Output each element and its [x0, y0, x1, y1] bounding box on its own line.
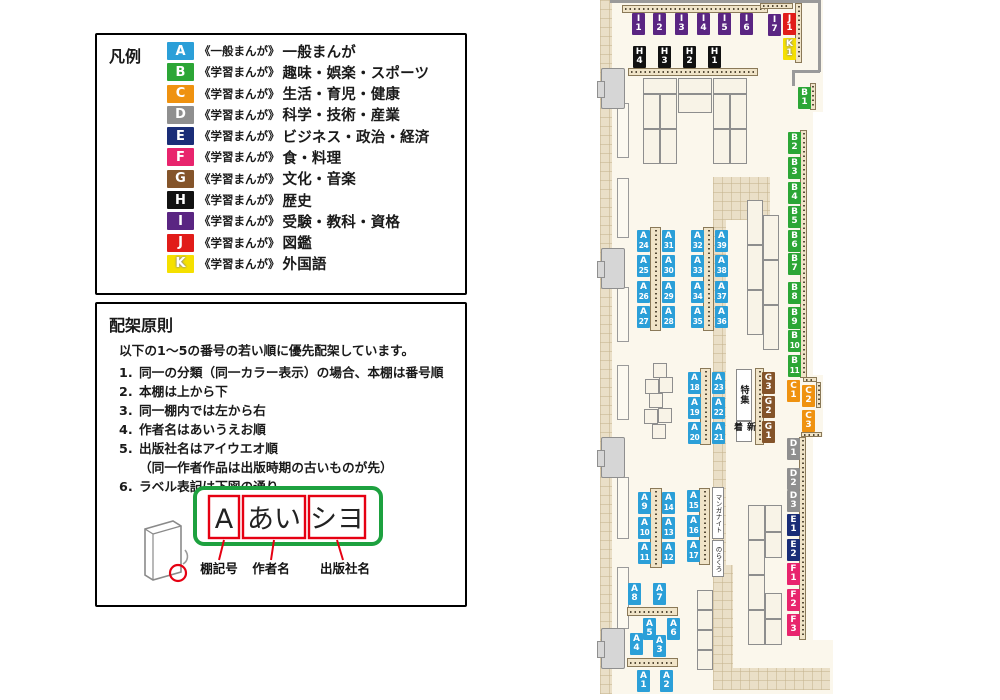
legend-swatch-A: A: [167, 42, 194, 60]
legend-category: 一般まんが: [283, 41, 357, 62]
table: [763, 215, 779, 260]
shelf-label-C3: C3: [802, 410, 815, 432]
shelf-letter: A: [718, 232, 725, 242]
legend-swatch-I: I: [167, 212, 194, 230]
shelf-label-A7: A7: [653, 583, 666, 605]
shelf-label-B7: B7: [788, 253, 801, 275]
table: [763, 305, 779, 350]
bookshelf-strip: [816, 382, 821, 408]
shelf-label-F3: F3: [787, 614, 800, 636]
shelf-label-A21: A21: [712, 422, 725, 444]
shelf-number: 2: [790, 479, 796, 489]
shelf-label-A38: A38: [715, 255, 728, 277]
shelf-number: 2: [805, 396, 811, 406]
legend-series: 《学習まんが》: [199, 235, 280, 251]
legend-series: 《学習まんが》: [199, 256, 280, 272]
shelf-number: 10: [790, 341, 799, 351]
table: [645, 379, 659, 394]
shelf-label-A9: A9: [638, 492, 651, 514]
shelf-number: 7: [656, 594, 662, 604]
shelf-label-A22: A22: [712, 397, 725, 419]
shelf-number: 37: [717, 292, 726, 302]
legend-category: 受験・教科・資格: [283, 211, 401, 232]
principles-list: 1.同一の分類（同一カラー表示）の場合、本棚は番号順2.本棚は上から下3.同一棚…: [119, 363, 459, 496]
shelf-number: 10: [640, 528, 649, 538]
bookshelf-strip: [650, 227, 661, 331]
principle-subtext: （同一作者作品は出版時期の古いものが先）: [119, 458, 459, 477]
shelf-number: 26: [639, 292, 648, 302]
shelf-number: 39: [717, 241, 726, 251]
table: [765, 505, 782, 532]
shelf-label-A15: A15: [687, 490, 700, 512]
shelf-label-H1: H1: [708, 46, 721, 68]
shelf-label-B8: B8: [788, 282, 801, 304]
shelf-label-A28: A28: [662, 306, 675, 328]
shelf-number: 8: [791, 293, 797, 303]
table: [713, 129, 730, 164]
shelf-label-A2: A2: [660, 670, 673, 692]
corridor: [713, 565, 733, 673]
shelf-letter: A: [665, 283, 672, 293]
bookshelf-strip: [700, 368, 711, 445]
shelf-label-K1: K1: [783, 38, 796, 60]
shelf-number: 28: [664, 317, 673, 327]
table: [658, 408, 672, 423]
legend-category: 歴史: [283, 190, 312, 211]
shelf-label-A27: A27: [637, 306, 650, 328]
shelf-label-B3: B3: [788, 157, 801, 179]
shelf-number: 17: [689, 551, 698, 561]
shelf-label-I2: I2: [653, 13, 666, 35]
shelf-letter: B: [791, 332, 798, 342]
shelf-number: 5: [721, 24, 727, 34]
legend-category: 外国語: [283, 253, 327, 274]
shelf-number: 1: [640, 681, 646, 691]
shelf-number: 1: [786, 49, 792, 59]
legend-item-H: H《学習まんが》歴史: [167, 191, 430, 209]
shelf-label-I6: I6: [740, 13, 753, 35]
legend-category: 趣味・娯楽・スポーツ: [283, 62, 430, 83]
bookshelf-strip: [622, 5, 768, 13]
shelf-label-A16: A16: [687, 515, 700, 537]
legend-series: 《学習まんが》: [199, 149, 280, 165]
shelf-letter: A: [691, 374, 698, 384]
principles-panel: 配架原則 以下の1〜5の番号の若い順に優先配架しています。 1.同一の分類（同一…: [95, 302, 467, 607]
wall-shelf: [617, 365, 629, 420]
bookshelf-strip: [760, 3, 793, 9]
legend-item-E: E《学習まんが》ビジネス・政治・経済: [167, 127, 430, 145]
legend-swatch-K: K: [167, 255, 194, 273]
legend-panel: 凡例 A《一般まんが》一般まんがB《学習まんが》趣味・娯楽・スポーツC《学習まん…: [95, 33, 467, 295]
shelf-number: 33: [693, 266, 702, 276]
shelf-number: 3: [765, 383, 771, 393]
shelf-number: 18: [690, 383, 699, 393]
shelf-number: 25: [639, 266, 648, 276]
shelf-letter: A: [690, 492, 697, 502]
shelf-label-A14: A14: [662, 492, 675, 514]
legend-swatch-B: B: [167, 63, 194, 81]
shelf-label-H4: H4: [633, 46, 646, 68]
shelf-number: 2: [663, 681, 669, 691]
map-area-label: 特集: [736, 369, 752, 421]
shelf-label-A24: A24: [637, 230, 650, 252]
shelf-label-A13: A13: [662, 517, 675, 539]
shelf-number: 2: [656, 24, 662, 34]
shelf-number: 19: [690, 408, 699, 418]
shelf-number: 4: [791, 193, 797, 203]
shelf-number: 38: [717, 266, 726, 276]
legend-item-J: J《学習まんが》図鑑: [167, 234, 430, 252]
shelf-letter: A: [715, 399, 722, 409]
legend-swatch-G: G: [167, 170, 194, 188]
author-text: あい: [247, 504, 301, 535]
wall: [792, 70, 820, 73]
shelf-number: 2: [790, 550, 796, 560]
principle-text: 作者名はあいうえお順: [139, 422, 266, 437]
legend-series: 《一般まんが》: [199, 43, 280, 59]
shelf-label-A20: A20: [688, 422, 701, 444]
shelf-label-A11: A11: [638, 542, 651, 564]
table: [730, 129, 747, 164]
shelf-label-A8: A8: [628, 583, 641, 605]
principle-text: 同一棚内では左から右: [139, 403, 266, 418]
shelf-number: 24: [639, 241, 648, 251]
bookshelf-strip: [628, 68, 758, 76]
legend-swatch-E: E: [167, 127, 194, 145]
principle-text: 出版社名はアイウエオ順: [139, 441, 278, 456]
table: [697, 630, 713, 650]
shelf-letter: B: [791, 357, 798, 367]
shelf-number: 1: [765, 432, 771, 442]
shelf-number: 34: [693, 292, 702, 302]
shelf-letter: A: [718, 308, 725, 318]
bookshelf-strip: [627, 658, 678, 667]
table: [653, 363, 667, 378]
shelf-number: 36: [717, 317, 726, 327]
shelf-number: 6: [743, 24, 749, 34]
shelf-number: 31: [664, 241, 673, 251]
shelf-label-C2: C2: [802, 385, 815, 407]
shelf-label-I7: I7: [768, 14, 781, 36]
shelf-number: 5: [791, 217, 797, 227]
shelf-label-I5: I5: [718, 13, 731, 35]
table: [697, 590, 713, 610]
shelf-label-A1: A1: [637, 670, 650, 692]
wall-shelf: [617, 287, 629, 342]
shelf-label-A34: A34: [691, 281, 704, 303]
shelf-number: 22: [714, 408, 723, 418]
shelf-label-A10: A10: [638, 517, 651, 539]
shelf-label-A31: A31: [662, 230, 675, 252]
shelf-number: 1: [801, 98, 807, 108]
shelf-letter: A: [641, 544, 648, 554]
shelf-label-A4: A4: [630, 633, 643, 655]
shelf-number: 2: [686, 57, 692, 67]
table: [748, 575, 765, 610]
shelf-number: 3: [791, 168, 797, 178]
shelf-code-text: A: [215, 504, 234, 535]
shelf-number: 30: [664, 266, 673, 276]
shelf-label-A17: A17: [687, 540, 700, 562]
shelf-number: 3: [661, 57, 667, 67]
shelf-number: 11: [640, 553, 649, 563]
legend-series: 《学習まんが》: [199, 213, 280, 229]
table: [765, 532, 782, 558]
table: [713, 94, 730, 129]
shelf-number: 1: [790, 525, 796, 535]
shelf-number: 15: [689, 501, 698, 511]
shelf-label-B2: B2: [788, 132, 801, 154]
legend-category: 食・料理: [283, 147, 342, 168]
caption-shelf-code: 棚記号: [200, 561, 238, 576]
shelf-number: 2: [791, 143, 797, 153]
shelf-label-H2: H2: [683, 46, 696, 68]
shelf-label-F2: F2: [787, 589, 800, 611]
shelf-letter: A: [691, 399, 698, 409]
shelf-label-A3: A3: [653, 635, 666, 657]
legend-swatch-D: D: [167, 106, 194, 124]
shelf-label-A33: A33: [691, 255, 704, 277]
door: [601, 248, 625, 289]
shelf-label-B1: B1: [798, 87, 811, 109]
shelf-label-A32: A32: [691, 230, 704, 252]
caption-publisher: 出版社名: [320, 561, 370, 576]
shelf-label-A26: A26: [637, 281, 650, 303]
shelf-label-D1: D1: [787, 438, 800, 460]
shelf-letter: A: [690, 542, 697, 552]
table: [747, 200, 763, 245]
shelf-letter: A: [718, 257, 725, 267]
table: [747, 245, 763, 290]
table: [678, 78, 712, 94]
principle-item-3: 3.同一棚内では左から右: [119, 401, 459, 420]
shelf-number: 4: [700, 24, 706, 34]
table: [713, 78, 747, 94]
shelf-label-A29: A29: [662, 281, 675, 303]
legend-category: 文化・音楽: [283, 168, 357, 189]
shelf-number: 4: [633, 644, 639, 654]
shelf-label-B9: B9: [788, 307, 801, 329]
shelf-number: 20: [690, 433, 699, 443]
shelf-letter: A: [665, 519, 672, 529]
shelf-label-G2: G2: [762, 396, 775, 418]
bookshelf-strip: [699, 488, 710, 565]
table: [643, 129, 660, 164]
table: [697, 650, 713, 670]
shelf-number: 8: [631, 594, 637, 604]
shelf-number: 2: [765, 407, 771, 417]
shelf-label-B6: B6: [788, 230, 801, 252]
shelf-letter: A: [640, 232, 647, 242]
shelf-letter: A: [665, 494, 672, 504]
table: [660, 129, 677, 164]
table: [652, 424, 666, 439]
book-icon: [145, 521, 187, 581]
bookshelf-strip: [799, 437, 806, 640]
wall: [818, 0, 821, 72]
shelf-letter: A: [715, 424, 722, 434]
shelf-label-B5: B5: [788, 206, 801, 228]
legend-category: 科学・技術・産業: [283, 104, 401, 125]
shelf-label-D2: D2: [787, 468, 800, 490]
shelf-label-B10: B10: [788, 330, 801, 352]
shelf-label-A19: A19: [688, 397, 701, 419]
table: [765, 593, 782, 619]
legend-item-C: C《学習まんが》生活・育児・健康: [167, 85, 430, 103]
shelf-letter: A: [640, 308, 647, 318]
shelf-letter: A: [665, 308, 672, 318]
principle-number: 5.: [119, 439, 139, 458]
shelf-number: 13: [664, 528, 673, 538]
table: [678, 94, 712, 113]
shelf-letter: A: [691, 424, 698, 434]
legend-item-A: A《一般まんが》一般まんが: [167, 42, 430, 60]
shelf-label-G1: G1: [762, 421, 775, 443]
shelf-number: 29: [664, 292, 673, 302]
shelf-letter: A: [665, 544, 672, 554]
shelf-label-E2: E2: [787, 539, 800, 561]
shelf-number: 2: [790, 600, 796, 610]
legend-swatch-C: C: [167, 85, 194, 103]
shelf-number: 35: [693, 317, 702, 327]
caption-author: 作者名: [252, 561, 290, 576]
shelf-number: 6: [670, 629, 676, 639]
shelf-number: 3: [678, 24, 684, 34]
shelf-letter: A: [694, 283, 701, 293]
table: [763, 260, 779, 305]
bookshelf-strip: [627, 607, 678, 616]
table: [765, 619, 782, 645]
shelf-number: 3: [790, 501, 796, 511]
wall: [792, 72, 795, 86]
legend-series: 《学習まんが》: [199, 107, 280, 123]
principle-text: 同一の分類（同一カラー表示）の場合、本棚は番号順: [139, 365, 444, 380]
shelf-letter: A: [640, 257, 647, 267]
bookshelf-strip: [795, 3, 802, 63]
table: [697, 610, 713, 630]
shelf-label-A39: A39: [715, 230, 728, 252]
shelf-letter: A: [641, 519, 648, 529]
shelf-label-A23: A23: [712, 372, 725, 394]
wall-shelf: [617, 178, 629, 238]
shelf-letter: A: [665, 257, 672, 267]
shelf-label-A37: A37: [715, 281, 728, 303]
legend-item-I: I《学習まんが》受験・教科・資格: [167, 212, 430, 230]
table: [643, 78, 677, 94]
shelf-number: 16: [689, 526, 698, 536]
legend-series: 《学習まんが》: [199, 64, 280, 80]
floor-map: 特集新着マンガナイトのらくろI1I2I3I4I5I6I7J1K1H4H3H2H1…: [595, 0, 845, 700]
shelf-number: 23: [714, 383, 723, 393]
shelf-number: 1: [635, 24, 641, 34]
bookshelf-strip: [650, 488, 662, 568]
bookshelf-strip: [800, 130, 807, 378]
shelf-label-I3: I3: [675, 13, 688, 35]
legend-series: 《学習まんが》: [199, 171, 280, 187]
shelf-label-A36: A36: [715, 306, 728, 328]
shelf-number: 32: [693, 241, 702, 251]
shelf-number: 1: [711, 57, 717, 67]
shelf-label-E1: E1: [787, 514, 800, 536]
shelf-label-B11: B11: [788, 355, 801, 377]
table: [730, 94, 747, 129]
shelf-label-A30: A30: [662, 255, 675, 277]
door: [601, 628, 625, 669]
shelf-letter: A: [694, 257, 701, 267]
shelf-label-J1: J1: [783, 13, 796, 35]
table: [748, 610, 765, 645]
table: [748, 505, 765, 540]
principle-text: 本棚は上から下: [139, 384, 228, 399]
label-example-diagram: A あい シヨ 棚記号 作者名 出版社名: [97, 484, 465, 604]
legend-swatch-H: H: [167, 191, 194, 209]
table: [659, 377, 673, 393]
wall-shelf: [617, 477, 629, 539]
shelf-number: 1: [786, 24, 792, 34]
principle-number: 3.: [119, 401, 139, 420]
legend-category: ビジネス・政治・経済: [283, 126, 430, 147]
principle-number: 1.: [119, 363, 139, 382]
map-area-label: のらくろ: [712, 540, 724, 577]
shelf-number: 21: [714, 433, 723, 443]
table: [649, 393, 663, 408]
principles-title: 配架原則: [109, 312, 173, 336]
legend-item-F: F《学習まんが》食・料理: [167, 148, 430, 166]
corridor: [713, 668, 830, 690]
legend-item-G: G《学習まんが》文化・音楽: [167, 170, 430, 188]
bookmark-tag: [183, 550, 187, 564]
table: [747, 290, 763, 335]
door: [601, 68, 625, 109]
shelf-number: 6: [791, 241, 797, 251]
legend-category: 生活・育児・健康: [283, 83, 401, 104]
shelf-letter: A: [718, 283, 725, 293]
legend-series: 《学習まんが》: [199, 192, 280, 208]
principle-item-1: 1.同一の分類（同一カラー表示）の場合、本棚は番号順: [119, 363, 459, 382]
legend-title: 凡例: [109, 43, 141, 67]
shelf-number: 3: [805, 421, 811, 431]
shelf-label-I4: I4: [697, 13, 710, 35]
shelf-label-G3: G3: [762, 372, 775, 394]
table: [644, 409, 658, 424]
legend-series: 《学習まんが》: [199, 86, 280, 102]
shelf-number: 9: [641, 503, 647, 513]
principle-item-4: 4.作者名はあいうえお順: [119, 420, 459, 439]
legend-item-B: B《学習まんが》趣味・娯楽・スポーツ: [167, 63, 430, 81]
shelf-label-F1: F1: [787, 563, 800, 585]
legend-item-K: K《学習まんが》外国語: [167, 255, 430, 273]
legend-swatch-J: J: [167, 234, 194, 252]
table: [643, 94, 660, 129]
shelf-letter: A: [690, 517, 697, 527]
shelf-number: 5: [646, 629, 652, 639]
shelf-number: 7: [791, 264, 797, 274]
shelf-number: 12: [664, 553, 673, 563]
shelf-label-D3: D3: [787, 490, 800, 512]
shelf-label-A18: A18: [688, 372, 701, 394]
principle-number: 4.: [119, 420, 139, 439]
shelf-label-A35: A35: [691, 306, 704, 328]
shelf-number: 1: [790, 449, 796, 459]
shelf-label-B4: B4: [788, 182, 801, 204]
publisher-text: シヨ: [310, 504, 364, 535]
shelf-number: 1: [790, 391, 796, 401]
shelf-label-A25: A25: [637, 255, 650, 277]
bookshelf-strip: [703, 227, 714, 331]
shelf-number: 27: [639, 317, 648, 327]
legend-rows: A《一般まんが》一般まんがB《学習まんが》趣味・娯楽・スポーツC《学習まんが》生…: [167, 42, 430, 276]
shelf-label-C1: C1: [787, 380, 800, 402]
